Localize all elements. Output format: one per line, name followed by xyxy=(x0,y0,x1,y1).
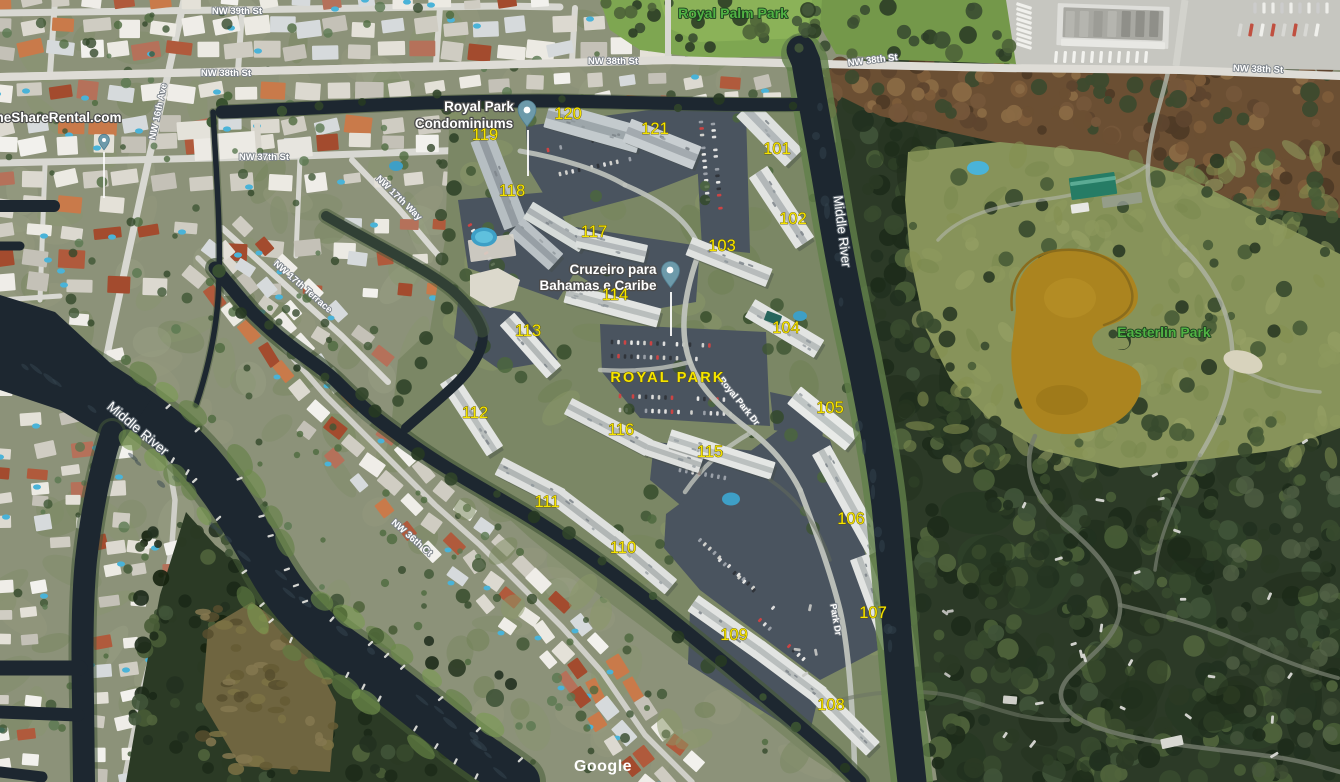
svg-text:Condominiums: Condominiums xyxy=(415,116,513,131)
svg-text:116: 116 xyxy=(608,421,634,439)
svg-text:Google: Google xyxy=(574,758,632,775)
svg-text:112: 112 xyxy=(462,404,488,422)
svg-text:105: 105 xyxy=(816,399,844,417)
svg-text:108: 108 xyxy=(817,696,845,714)
svg-text:NW 38th St: NW 38th St xyxy=(1233,63,1284,76)
svg-text:106: 106 xyxy=(837,510,865,528)
svg-text:NW 38th St: NW 38th St xyxy=(588,56,639,67)
svg-text:109: 109 xyxy=(720,626,748,644)
svg-text:119: 119 xyxy=(472,126,498,144)
svg-text:Easterlin Park: Easterlin Park xyxy=(1117,324,1211,340)
svg-text:114: 114 xyxy=(602,286,628,304)
svg-text:113: 113 xyxy=(515,322,541,340)
svg-text:Royal Palm Park: Royal Palm Park xyxy=(678,5,788,21)
svg-text:117: 117 xyxy=(581,223,607,241)
svg-text:120: 120 xyxy=(554,105,582,123)
svg-text:Cruzeiro para: Cruzeiro para xyxy=(569,262,657,277)
svg-text:110: 110 xyxy=(610,539,636,557)
svg-text:ROYAL PARK: ROYAL PARK xyxy=(610,370,725,386)
svg-text:111: 111 xyxy=(534,493,559,511)
svg-text:101: 101 xyxy=(763,140,791,158)
svg-text:TimeShareRental.com: TimeShareRental.com xyxy=(0,110,122,125)
svg-text:104: 104 xyxy=(772,319,800,337)
svg-text:NW 38th St: NW 38th St xyxy=(201,68,252,79)
svg-text:121: 121 xyxy=(641,120,669,138)
svg-text:107: 107 xyxy=(859,604,887,622)
svg-text:115: 115 xyxy=(697,443,723,461)
svg-text:Royal Park: Royal Park xyxy=(444,99,514,114)
svg-text:NW 39th St: NW 39th St xyxy=(212,6,263,17)
svg-text:NW 37th St: NW 37th St xyxy=(239,152,290,163)
svg-text:Bahamas e Caribe: Bahamas e Caribe xyxy=(539,278,657,293)
svg-text:103: 103 xyxy=(708,237,736,255)
svg-text:118: 118 xyxy=(499,182,525,200)
svg-text:102: 102 xyxy=(779,210,807,228)
